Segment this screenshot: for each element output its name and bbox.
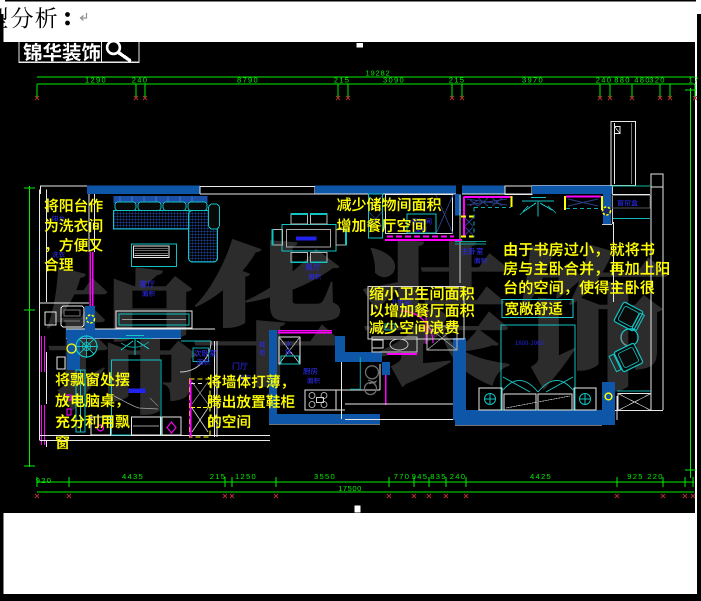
svg-text:1290: 1290 (85, 76, 107, 85)
svg-text:240: 240 (596, 76, 613, 85)
svg-text:215: 215 (210, 472, 227, 481)
svg-text:4425: 4425 (530, 472, 552, 481)
svg-text:880: 880 (614, 76, 631, 85)
svg-text:835: 835 (430, 472, 447, 481)
svg-text:920: 920 (36, 476, 53, 485)
svg-text:240: 240 (132, 76, 149, 85)
svg-text:3970: 3970 (522, 76, 544, 85)
svg-text:4435: 4435 (122, 472, 144, 481)
svg-text:3090: 3090 (383, 76, 405, 85)
svg-text:215: 215 (449, 76, 466, 85)
svg-text:220: 220 (647, 472, 664, 481)
svg-text:17500: 17500 (338, 484, 362, 493)
svg-text:240: 240 (450, 472, 467, 481)
svg-text:1250: 1250 (235, 472, 257, 481)
svg-text:8790: 8790 (237, 76, 259, 85)
svg-text:770: 770 (394, 472, 411, 481)
svg-text:17: 17 (688, 76, 699, 85)
svg-text:3550: 3550 (314, 472, 336, 481)
svg-text:215: 215 (334, 76, 351, 85)
svg-text:320: 320 (649, 76, 666, 85)
svg-text:925: 925 (627, 472, 644, 481)
